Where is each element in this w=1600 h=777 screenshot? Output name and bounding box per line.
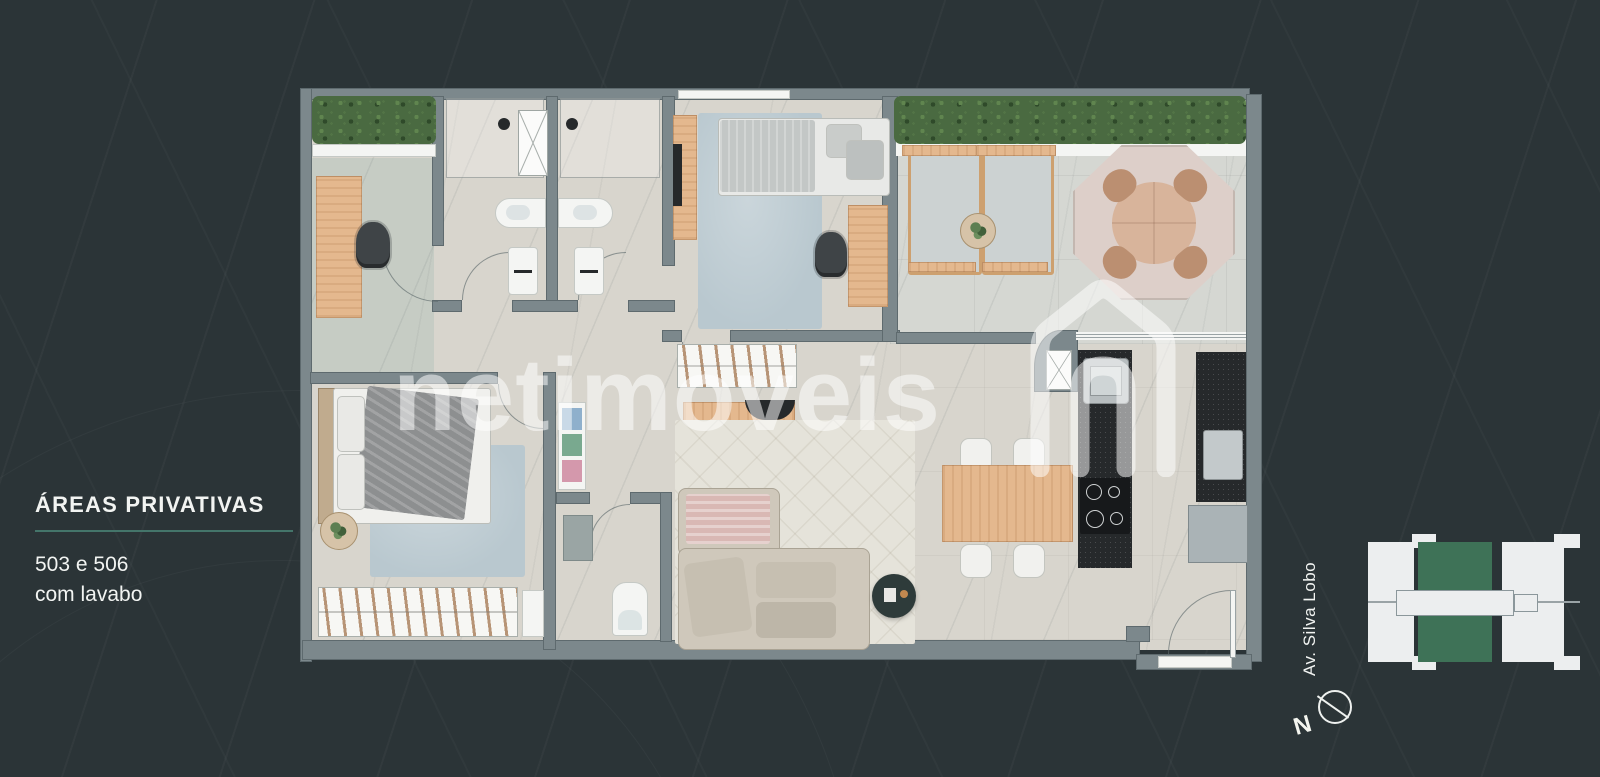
entry-door-leaf xyxy=(1230,590,1236,658)
bedroom2-pillow-2 xyxy=(846,140,884,180)
bedroom2-tv xyxy=(673,144,682,206)
watermark-text: netimoveis xyxy=(393,336,941,454)
bedroom2-blanket xyxy=(720,120,815,192)
sink-basin-bath1 xyxy=(506,205,530,220)
bedroom2-window xyxy=(678,90,790,99)
wall-lavabo-right xyxy=(660,492,672,642)
terrace-lounger-2-footbar xyxy=(982,262,1048,272)
wall-lavabo-top-seg2 xyxy=(630,492,663,504)
bedroom1-pillow-1 xyxy=(337,396,365,452)
wall-outer-right xyxy=(1246,94,1262,662)
cooktop-burner-1 xyxy=(1086,484,1102,500)
page-title: ÁREAS PRIVATIVAS xyxy=(35,492,293,518)
bedroom1-slatted-window xyxy=(318,587,518,637)
shower-bath2 xyxy=(560,98,660,178)
title-underline xyxy=(35,530,293,532)
building-tab-bottom-right xyxy=(1554,656,1580,670)
sink-basin-bath2 xyxy=(573,205,597,220)
terrace-lounger-1-footbar xyxy=(908,262,976,272)
lavabo-toilet-bowl xyxy=(618,610,642,630)
terrace-hedge xyxy=(894,96,1246,144)
sofa-throw-blanket xyxy=(686,494,770,544)
toilet-bath2-seat-line xyxy=(580,270,598,273)
info-panel: ÁREAS PRIVATIVAS 503 e 506 com lavabo xyxy=(35,492,293,610)
bedroom1-pillow-2 xyxy=(337,454,365,510)
building-unit-506 xyxy=(1418,610,1492,662)
building-corridor xyxy=(1396,590,1514,616)
sofa-cushion-3 xyxy=(756,602,836,638)
terrace-lounger-2-headbar xyxy=(976,145,1056,156)
bedroom2-chair xyxy=(815,232,847,277)
unit-numbers: 503 e 506 xyxy=(35,550,293,580)
watermark-logo-icon xyxy=(1018,272,1188,477)
building-corridor-step xyxy=(1514,594,1538,612)
building-unit-503 xyxy=(1418,542,1492,594)
coffee-table-bowl xyxy=(900,590,908,598)
terrace-lounger-2 xyxy=(982,147,1054,275)
toilet-bath1-seat-line xyxy=(514,270,532,273)
cooktop-burner-4 xyxy=(1110,512,1123,525)
terrace-lounger-1 xyxy=(908,147,982,275)
kitchen-appliance xyxy=(1188,505,1248,563)
dining-chair-4 xyxy=(1013,544,1045,578)
unit-feature: com lavabo xyxy=(35,580,293,610)
bookshelf-item-pink xyxy=(562,460,582,482)
coffee-table-book xyxy=(884,588,896,602)
building-locator xyxy=(1368,532,1580,672)
terrace-lounger-1-headbar xyxy=(902,145,982,156)
duct-shaft-bath xyxy=(518,110,548,176)
office-chair xyxy=(356,222,390,268)
floorplan-page: netimoveis ÁREAS PRIVATIVAS 503 e 506 co… xyxy=(0,0,1600,777)
building-tab-top-right xyxy=(1554,534,1580,548)
street-label: Av. Silva Lobo xyxy=(1300,528,1320,676)
balcony-door-panel xyxy=(522,590,544,637)
dining-chair-3 xyxy=(960,544,992,578)
cooktop-burner-2 xyxy=(1108,486,1120,498)
wall-entry-step xyxy=(1126,626,1150,642)
bedroom1-plant xyxy=(326,518,350,542)
kitchen-fridge xyxy=(1203,430,1243,480)
wall-lavabo-top-seg1 xyxy=(556,492,590,504)
terrace-table-plant xyxy=(966,218,990,242)
lavabo-sink xyxy=(563,515,593,561)
entry-door-opening xyxy=(1158,656,1232,668)
sofa-cushion-2 xyxy=(756,562,836,598)
shower-head-bath1 xyxy=(498,118,510,130)
planter-sill xyxy=(312,144,436,157)
cooktop-burner-3 xyxy=(1086,510,1104,528)
wall-bath-bottom-seg3 xyxy=(628,300,675,312)
planter-office xyxy=(312,96,436,144)
shower-head-bath2 xyxy=(566,118,578,130)
wall-bath-bottom-seg2 xyxy=(512,300,578,312)
bedroom2-desk xyxy=(848,205,888,307)
sofa-cushion-1 xyxy=(683,556,753,638)
